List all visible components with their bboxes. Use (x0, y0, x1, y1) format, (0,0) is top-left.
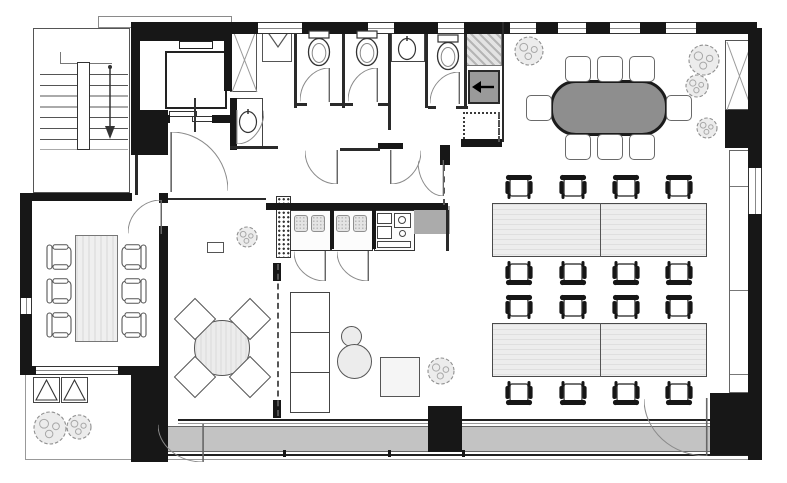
meeting-chair (117, 278, 147, 304)
booth-chair (294, 215, 308, 232)
door-arc (170, 132, 228, 192)
wall-segment (131, 110, 168, 155)
meeting-chair (117, 312, 147, 338)
wall-segment-thin (342, 34, 345, 108)
booth-chair (311, 215, 325, 232)
wall-segment (330, 210, 334, 249)
sofa-divider (291, 332, 329, 333)
wall-segment-thin (428, 106, 436, 109)
wall-segment (748, 28, 762, 460)
side-table (380, 357, 420, 397)
large-meeting-table (550, 80, 668, 136)
office-chair (609, 254, 643, 288)
tree (66, 414, 92, 440)
banquet-chair (597, 134, 623, 160)
wall-segment-thin (230, 146, 278, 149)
office-chair (662, 172, 696, 206)
window-tick (462, 450, 465, 457)
meeting-chair (46, 312, 76, 338)
kitchen-burner (399, 230, 406, 237)
office-chair (502, 374, 536, 408)
booth-chair (353, 215, 367, 232)
toilet (353, 30, 381, 70)
dash-partition (277, 264, 279, 416)
shaft-x-left (230, 26, 257, 92)
wall-segment (20, 193, 132, 201)
office-chair (609, 374, 643, 408)
wall-segment-thin (294, 34, 297, 108)
small-meeting-table (75, 235, 118, 342)
elevator-centerline (194, 98, 196, 132)
window-tick (388, 450, 391, 457)
floor-plan (0, 0, 787, 483)
tree (236, 226, 258, 248)
wall-segment-thin (425, 34, 428, 108)
office-chair (662, 254, 696, 288)
kitchen-appliance (377, 213, 392, 224)
door-arc (305, 150, 338, 184)
wall-segment (131, 33, 232, 41)
wall-segment-thin (345, 103, 353, 106)
desk-divider (600, 323, 601, 377)
balcony-edge2 (166, 459, 758, 460)
window-tick (283, 450, 286, 457)
wall-panel (207, 242, 224, 253)
banquet-chair (597, 56, 623, 82)
kitchen-sink (377, 226, 392, 239)
wall-segment (428, 406, 462, 452)
planter (33, 377, 60, 403)
office-chair (556, 292, 590, 326)
banquet-chair (629, 134, 655, 160)
dash-partition (498, 112, 500, 142)
window (258, 22, 302, 34)
wall-segment (224, 33, 232, 91)
meeting-chair (46, 278, 76, 304)
wall-segment (159, 226, 168, 373)
window (558, 22, 586, 34)
office-chair (556, 374, 590, 408)
wall-segment-thin (502, 22, 504, 142)
meeting-chair (46, 244, 76, 270)
wall-segment-thin (388, 34, 391, 130)
desk-divider (600, 203, 601, 257)
meeting-chair (117, 244, 147, 270)
toilet (305, 30, 333, 70)
bench-divider (730, 290, 750, 291)
wall-segment-thin (135, 155, 138, 195)
sink (397, 35, 417, 61)
wall-segment-thin (378, 103, 391, 106)
wall-segment (378, 143, 403, 149)
tree (688, 44, 720, 76)
sofa (290, 292, 330, 413)
wall-segment (266, 203, 448, 210)
tree (685, 74, 709, 98)
stair-down-arrow-icon (102, 64, 118, 142)
wall-segment (20, 193, 32, 373)
elevator-counterweight (179, 41, 213, 49)
door-arc (418, 160, 444, 196)
office-chair (502, 254, 536, 288)
window (666, 22, 696, 34)
office-chair (556, 254, 590, 288)
dumbwaiter (468, 70, 500, 104)
wall-segment-thin (464, 34, 467, 108)
office-chair (609, 292, 643, 326)
wall-segment-thin (168, 198, 266, 200)
tree (514, 36, 544, 66)
banquet-chair (565, 134, 591, 160)
door-arc (644, 398, 708, 456)
door-arc (236, 110, 264, 144)
wall-segment-thin (340, 148, 380, 151)
tree (33, 411, 67, 445)
wall-segment (725, 110, 753, 148)
office-chair (502, 292, 536, 326)
door-arc (294, 251, 326, 281)
window (748, 168, 762, 214)
wall-segment-thin (330, 103, 345, 106)
door-arc (430, 72, 460, 104)
wall-segment (212, 115, 232, 123)
banquet-chair (666, 95, 692, 121)
door-arc (348, 68, 378, 102)
elevator-car (165, 51, 227, 109)
wall-segment-thin (446, 210, 449, 251)
banquet-chair (629, 56, 655, 82)
kitchen-drawer (377, 241, 411, 248)
door-arc (300, 68, 330, 102)
pouf-large (337, 344, 372, 379)
wall-segment (461, 139, 502, 147)
office-chair (502, 172, 536, 206)
kitchen-burner (398, 216, 406, 224)
window (20, 298, 32, 314)
refrigerator (414, 206, 450, 234)
tree (696, 117, 718, 139)
sofa-divider (291, 372, 329, 373)
wall-segment (372, 210, 376, 249)
door-arc (337, 251, 369, 281)
window (610, 22, 640, 34)
banquet-chair (565, 56, 591, 82)
wall-segment-thin (297, 103, 307, 106)
door-arc (390, 150, 421, 184)
office-chair (662, 292, 696, 326)
door-arc (158, 424, 204, 462)
window (36, 366, 118, 375)
office-chair (609, 172, 643, 206)
tree (427, 357, 455, 385)
banquet-chair (526, 95, 552, 121)
arrow-left-icon (470, 72, 498, 102)
toilet (434, 34, 462, 74)
wall-segment-thin (456, 106, 468, 109)
stair-rail (77, 62, 90, 150)
booth-chair (336, 215, 350, 232)
window (510, 22, 536, 34)
bench-divider (730, 374, 750, 375)
office-chair (556, 172, 590, 206)
door-arc (128, 200, 162, 234)
window (438, 22, 464, 34)
planter (61, 377, 88, 403)
bench-divider (730, 186, 750, 187)
